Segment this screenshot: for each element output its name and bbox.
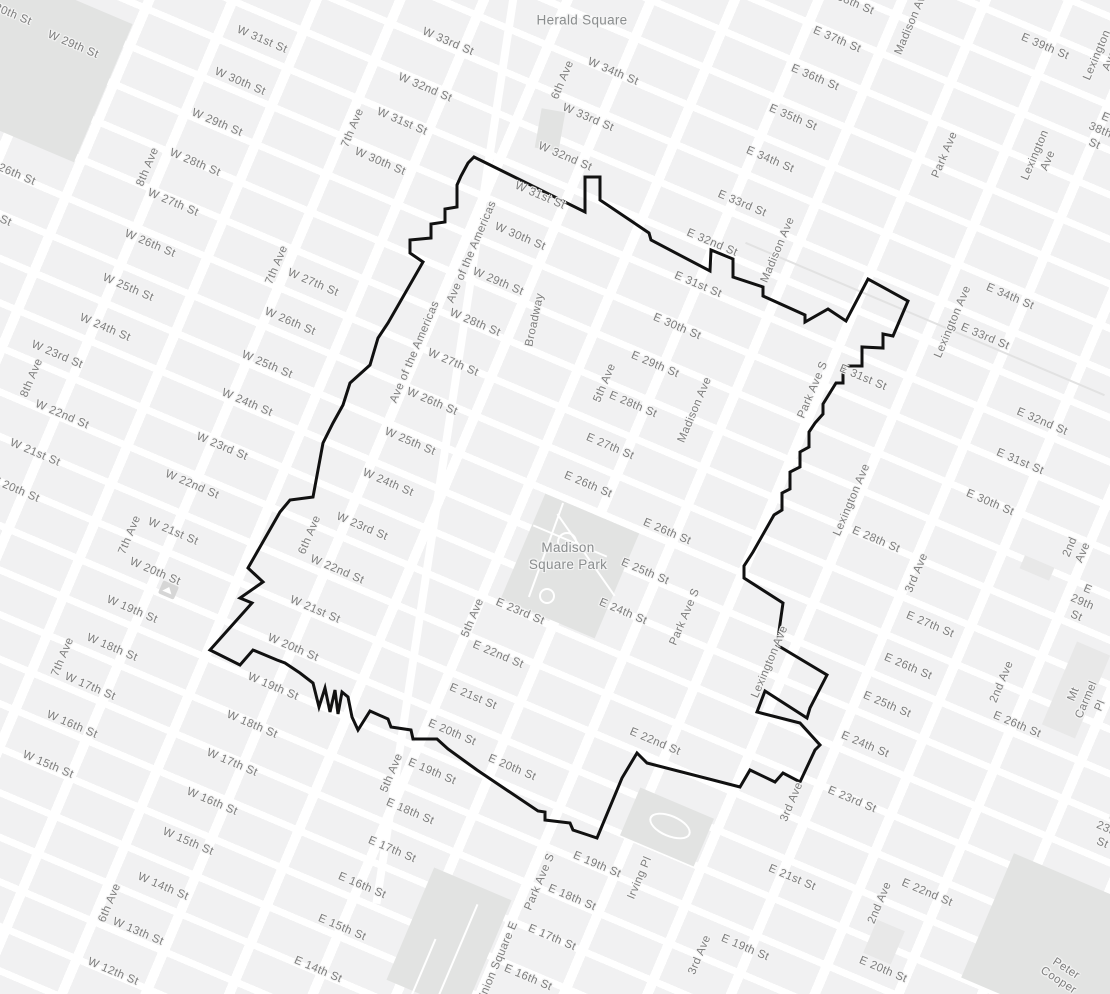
street-label: E 22nd St <box>899 876 954 910</box>
avenue-label: Park Ave S <box>667 586 704 647</box>
street-label: E 37th St <box>811 23 863 56</box>
street-label: W 27th St <box>285 266 340 300</box>
street-label: E 24th St <box>597 595 649 628</box>
street-label: W 29th St <box>189 106 244 140</box>
street-label: W 23rd St <box>194 430 250 465</box>
street-label: E 27th St <box>904 608 956 641</box>
street-label: W 25th St <box>382 425 437 459</box>
street-label: E 25th St <box>619 555 671 588</box>
avenue-label: Irving Pl <box>625 854 656 901</box>
street-label: E 20th St <box>486 751 538 784</box>
street-label: E 26th St <box>991 708 1043 741</box>
street-label: W 19th St <box>245 670 300 704</box>
street-label: W 26th St <box>262 305 317 339</box>
street-label: W 25th St <box>0 196 14 230</box>
street-label: E 19th St <box>571 848 623 881</box>
street-label: W 30th St <box>492 220 547 254</box>
street-label: W 16th St <box>184 785 239 819</box>
street-label: E 23rd St <box>493 595 546 628</box>
street-label: E 22nd St <box>627 725 682 759</box>
street-label: E 34th St <box>984 280 1036 313</box>
street-label: W 21st St <box>8 436 63 470</box>
street-label: E 35th St <box>767 101 819 134</box>
street-label: E 32nd St <box>684 226 739 260</box>
street-label: E 27th St <box>584 430 636 463</box>
street-label: W 28th St <box>167 146 222 180</box>
street-label: E 19th St <box>406 755 458 788</box>
avenue-label: Madison Ave <box>892 0 933 57</box>
street-label: W 13th St <box>110 915 165 949</box>
street-label: W 15th St <box>20 748 75 782</box>
street-label: W 27th St <box>425 346 480 380</box>
street-label: E 14th St <box>292 953 344 986</box>
labels-layer: W 30th StW 29th StW 26th StW 25th StW 23… <box>0 0 1110 994</box>
street-label: E 36th St <box>789 61 841 94</box>
street-label: W 29th St <box>45 28 100 62</box>
street-label: W 12th St <box>85 955 140 989</box>
street-label: W 26th St <box>122 227 177 261</box>
street-label: W 32nd St <box>396 70 454 106</box>
avenue-label: 7th Ave <box>338 106 367 149</box>
street-label: E 31st St <box>672 269 724 302</box>
street-label: W 20th St <box>0 472 42 506</box>
avenue-label: 6th Ave <box>548 58 577 101</box>
street-label: E 21st St <box>447 681 499 714</box>
street-label: W 17th St <box>204 746 259 780</box>
avenue-label: Ave of the Americas <box>444 199 500 306</box>
poi-label: Madison Square Park <box>529 540 607 574</box>
street-label: W 16th St <box>44 708 99 742</box>
avenue-label: 8th Ave <box>17 356 46 399</box>
street-label: W 30th St <box>212 65 267 99</box>
street-label: E 16th St <box>502 961 554 994</box>
street-label: E 32nd St <box>1014 405 1069 439</box>
street-label: E 25th St <box>861 688 913 721</box>
map-canvas[interactable]: W 30th StW 29th StW 26th StW 25th StW 23… <box>0 0 1110 994</box>
street-label: E 33rd St <box>715 187 768 220</box>
avenue-label: Mt Carmel Pl <box>1059 673 1110 726</box>
street-label: W 34th St <box>585 55 640 89</box>
street-label: W 28th St <box>447 306 502 340</box>
street-label: E 33rd St <box>958 320 1011 353</box>
street-label: E 38th St <box>824 0 876 19</box>
street-label: W 24th St <box>219 386 274 420</box>
street-label: W 30th St <box>352 145 407 179</box>
street-label: W 26th St <box>0 155 38 189</box>
avenue-label: 2nd Ave <box>1057 529 1096 571</box>
street-label: W 18th St <box>84 631 139 665</box>
avenue-label: Lexington Ave <box>1015 121 1068 195</box>
street-label: E 39th St <box>1019 30 1071 63</box>
street-label: W 22nd St <box>33 397 91 433</box>
street-label: E 26th St <box>562 468 614 501</box>
street-label: E 20th St <box>426 716 478 749</box>
street-label: E 31st St <box>994 446 1046 479</box>
street-label: E 28th St <box>607 388 659 421</box>
street-label: W 22nd St <box>163 467 221 503</box>
avenue-label: 3rd Ave <box>902 551 931 595</box>
street-label: W 23rd St <box>334 510 390 545</box>
street-label: E 23rd St <box>825 783 878 816</box>
street-label: E 30th St <box>964 486 1016 519</box>
street-label: E 23rd St <box>1088 805 1110 854</box>
street-label: E 17th St <box>366 833 418 866</box>
street-label: W 26th St <box>404 385 459 419</box>
street-label: E 19th St <box>719 931 771 964</box>
street-label: W 17th St <box>62 670 117 704</box>
street-label: E 18th St <box>546 881 598 914</box>
street-label: W 31st St <box>513 179 568 213</box>
street-label: W 20th St <box>265 631 320 665</box>
street-label: E 17th St <box>526 921 578 954</box>
street-label: W 22nd St <box>308 552 366 588</box>
street-label: W 15th St <box>160 825 215 859</box>
avenue-label: 5th Ave <box>458 596 487 639</box>
avenue-label: 5th Ave <box>377 751 406 794</box>
avenue-label: Lexington Ave <box>1080 28 1110 88</box>
street-label: W 32nd St <box>536 139 594 175</box>
street-label: E 15th St <box>316 911 368 944</box>
street-label: W 18th St <box>224 708 279 742</box>
avenue-label: Park Ave S <box>795 359 832 420</box>
avenue-label: 6th Ave <box>295 513 324 556</box>
avenue-label: 3rd Ave <box>777 780 806 824</box>
street-label: E 24th St <box>839 728 891 761</box>
avenue-label: 3rd Ave <box>685 933 714 977</box>
street-label: E 29th St <box>629 348 681 381</box>
street-label: E 31st St <box>837 362 889 395</box>
street-label: E 16th St <box>336 869 388 902</box>
avenue-label: Lexington Ave <box>748 624 791 701</box>
street-label: E 26th St <box>882 650 934 683</box>
street-label: W 24th St <box>77 311 132 345</box>
street-label: E 21st St <box>766 862 818 895</box>
avenue-label: Madison Ave <box>758 215 799 285</box>
avenue-label: 2nd Ave <box>987 659 1017 705</box>
street-label: W 25th St <box>100 271 155 305</box>
street-label: E 30th St <box>651 310 703 343</box>
street-label: E 20th St <box>857 953 909 986</box>
avenue-label: 7th Ave <box>115 513 144 556</box>
poi-label: Herald Square <box>537 13 628 30</box>
street-label: W 21st St <box>288 593 343 627</box>
street-label: W 33rd St <box>560 101 616 136</box>
street-label: W 14th St <box>135 870 190 904</box>
avenue-label: Lexington Ave <box>830 462 873 539</box>
street-label: W 21st St <box>146 515 201 549</box>
street-label: E 22nd St <box>470 638 525 672</box>
avenue-label: Madison Ave <box>675 375 716 445</box>
street-label: Peter Cooper <box>1034 950 1090 994</box>
avenue-label: Park Ave <box>929 130 961 181</box>
street-label: E 26th St <box>641 515 693 548</box>
avenue-label: 8th Ave <box>133 145 162 188</box>
street-label: W 31st St <box>235 23 290 57</box>
street-label: W 33rd St <box>420 25 476 60</box>
avenue-label: 2nd Ave <box>865 880 895 926</box>
street-label: W 20th St <box>127 555 182 589</box>
street-label: E 29th St <box>1061 578 1104 629</box>
street-label: W 29th St <box>470 265 525 299</box>
street-label: W 25th St <box>239 348 294 382</box>
street-label: W 31st St <box>375 105 430 139</box>
street-label: E 34th St <box>744 143 796 176</box>
street-label: E 38th St <box>1081 106 1110 155</box>
avenue-label: Broadway <box>522 292 547 348</box>
street-label: E 18th St <box>384 795 436 828</box>
street-label: W 24th St <box>360 466 415 500</box>
street-label: E 28th St <box>850 523 902 556</box>
street-label: W 27th St <box>145 186 200 220</box>
avenue-label: Union Square E <box>474 919 521 994</box>
street-label: W 19th St <box>104 593 159 627</box>
street-label: W 30th St <box>0 0 34 29</box>
